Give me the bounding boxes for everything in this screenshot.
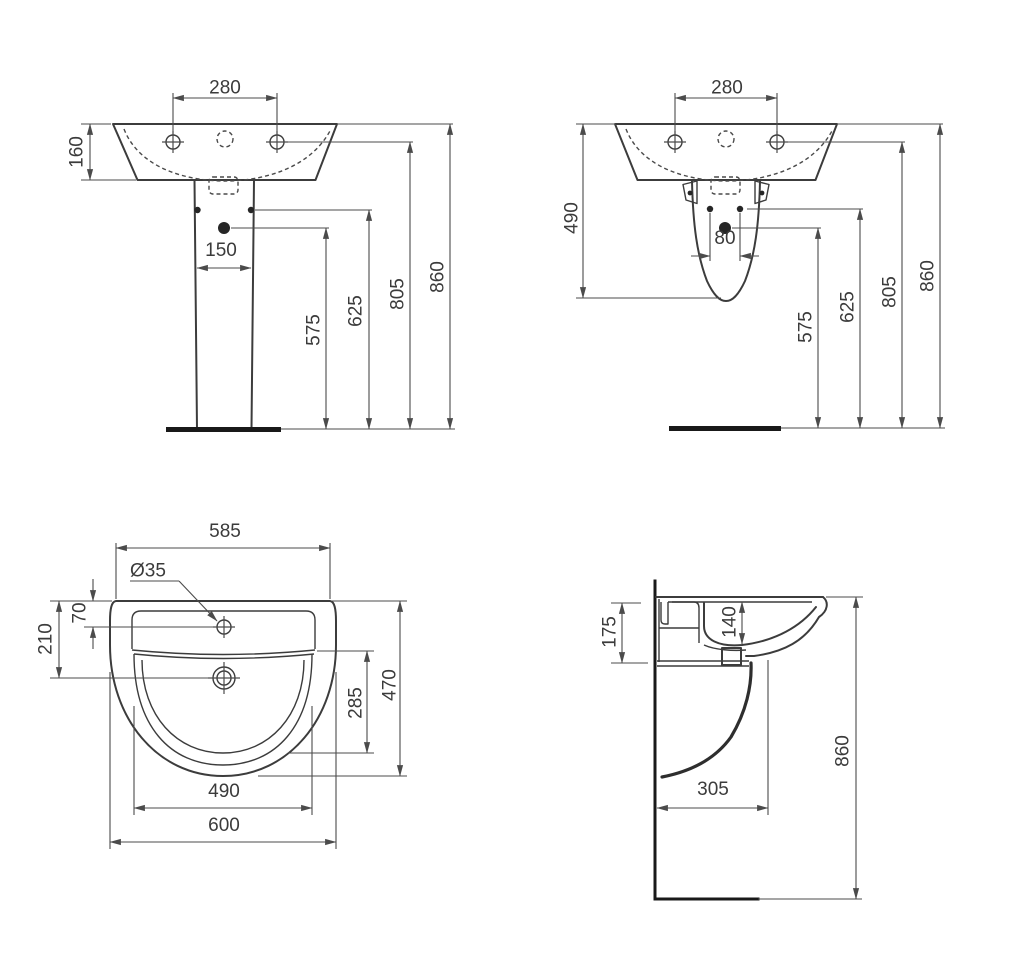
fixing-hole-right bbox=[737, 206, 743, 212]
view-plan: Ø35 585 70 210 285 470 490 bbox=[36, 521, 407, 849]
dim-bowl-depth: 285 bbox=[346, 687, 367, 719]
taphole-center-optional-icon bbox=[718, 131, 734, 147]
dim-drain-offset: 210 bbox=[36, 623, 57, 655]
dim-taphole-diameter: Ø35 bbox=[130, 561, 166, 582]
dim-805-semi: 805 bbox=[880, 276, 901, 308]
view-front-semi-pedestal: 80 280 490 575 625 805 860 bbox=[562, 78, 945, 429]
bracket-slot bbox=[661, 602, 668, 624]
dim-575-full: 575 bbox=[304, 314, 325, 346]
dim-overall-width: 600 bbox=[208, 815, 240, 836]
taphole-center-optional-icon bbox=[217, 131, 233, 147]
dim-805-full: 805 bbox=[388, 278, 409, 310]
washbasin-dimension-drawing: 280 160 150 575 625 805 860 bbox=[0, 0, 1024, 965]
dim-tap-spacing-full: 280 bbox=[209, 78, 241, 99]
dim-bowl-width: 490 bbox=[208, 781, 240, 802]
dim-basin-height: 160 bbox=[67, 136, 88, 168]
deck-front-edge bbox=[132, 650, 315, 655]
bracket-outline bbox=[668, 602, 699, 643]
basin-bowl-hidden-edge bbox=[626, 129, 833, 181]
dim-860-semi: 860 bbox=[918, 260, 939, 292]
dim-fixing-spacing: 80 bbox=[714, 228, 735, 249]
dim-pedestal-width: 150 bbox=[205, 240, 237, 261]
semi-pedestal-profile bbox=[662, 663, 751, 777]
dim-rim-height: 175 bbox=[600, 616, 621, 648]
pedestal-fixing-left bbox=[194, 207, 200, 213]
dim-overall-depth: 470 bbox=[380, 669, 401, 701]
technical-drawing-canvas: 280 160 150 575 625 805 860 bbox=[0, 0, 1024, 965]
view-side-section: 140 175 305 860 bbox=[600, 581, 863, 899]
basin-outline bbox=[113, 124, 337, 180]
rim-front-outer bbox=[746, 597, 827, 656]
pedestal-drain-point bbox=[218, 222, 230, 234]
dim-860-side: 860 bbox=[833, 735, 854, 767]
dim-625-semi: 625 bbox=[838, 291, 859, 323]
pedestal-right-edge bbox=[252, 180, 255, 429]
dim-drain-distance: 305 bbox=[697, 779, 729, 800]
dim-back-width: 585 bbox=[209, 521, 241, 542]
dim-860-full: 860 bbox=[428, 261, 449, 293]
fixing-hole-left bbox=[707, 206, 713, 212]
dim-taphole-offset: 70 bbox=[70, 602, 91, 623]
pedestal-left-edge bbox=[195, 180, 198, 429]
basin-outline bbox=[615, 124, 837, 180]
dim-tap-spacing-semi: 280 bbox=[711, 78, 743, 99]
pedestal-fixing-right bbox=[248, 207, 254, 213]
view-front-full-pedestal: 280 160 150 575 625 805 860 bbox=[67, 78, 455, 430]
dim-575-semi: 575 bbox=[796, 311, 817, 343]
dim-bowl-inner-depth: 140 bbox=[720, 606, 741, 638]
basin-bowl-hidden-edge bbox=[124, 129, 331, 181]
dim-625-full: 625 bbox=[346, 295, 367, 327]
bowl-floor-edge bbox=[142, 660, 304, 753]
dim-semi-pedestal-height: 490 bbox=[562, 202, 583, 234]
